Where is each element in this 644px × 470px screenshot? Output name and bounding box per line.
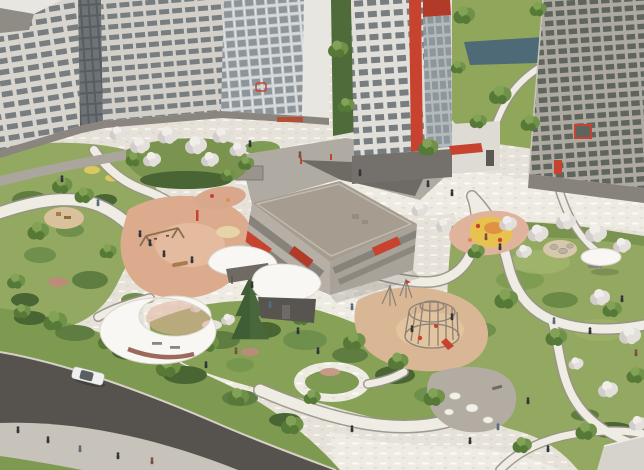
umbrella-canopy [581, 249, 621, 266]
roof-vent [352, 214, 359, 219]
person [151, 457, 154, 464]
grove-shrub-band [140, 171, 232, 189]
person [411, 325, 414, 332]
boulder [445, 409, 454, 415]
right-facade [529, 0, 644, 188]
stone [559, 248, 568, 254]
play-item [210, 194, 214, 198]
person [469, 437, 472, 444]
shrub [72, 271, 108, 289]
tree-gap [331, 0, 354, 136]
shrub [226, 358, 254, 372]
person [299, 151, 302, 158]
swing-seat [154, 238, 157, 240]
person [351, 303, 354, 310]
person [451, 313, 454, 320]
annex-door [486, 150, 494, 166]
person [249, 140, 252, 147]
person [547, 445, 550, 452]
roof-vent [362, 220, 368, 224]
person [235, 347, 238, 354]
right-apartment-building [528, 0, 644, 203]
pavilion-door [282, 305, 290, 319]
play-post [196, 210, 199, 221]
play-item [468, 238, 472, 242]
person [527, 397, 530, 404]
person [117, 452, 120, 459]
play-item [498, 238, 502, 242]
flower-bed [320, 368, 340, 376]
balcony-wing [221, 0, 304, 116]
boulder [466, 404, 478, 412]
facade-slab-b [101, 0, 224, 121]
bench [170, 346, 180, 349]
flower-bed [48, 277, 68, 287]
person [359, 169, 362, 176]
end-wall [302, 0, 331, 118]
person [635, 349, 638, 356]
person [451, 189, 454, 196]
person [191, 256, 194, 263]
stone [567, 244, 574, 248]
stair-glass-stripe [78, 0, 103, 126]
wood-structure [64, 216, 71, 219]
person [297, 327, 300, 334]
red-framed-window [575, 125, 591, 138]
person [427, 180, 430, 187]
person [485, 233, 488, 240]
person [149, 239, 152, 246]
person [499, 243, 502, 250]
person [97, 199, 100, 206]
courtyard-render-stage [0, 0, 644, 470]
bench [152, 342, 162, 345]
person [163, 250, 166, 257]
shrub [542, 292, 578, 308]
person [47, 436, 50, 443]
person [17, 426, 20, 433]
play-item [418, 336, 422, 340]
person [317, 347, 320, 354]
person [251, 281, 254, 288]
storefront-red [277, 117, 303, 122]
shrub [283, 330, 327, 350]
boulder [450, 393, 461, 400]
person [621, 295, 624, 302]
tower-red-stripe [409, 0, 423, 152]
person [553, 317, 556, 324]
flower-bed [241, 348, 259, 356]
boulder [483, 417, 493, 423]
person [351, 425, 354, 432]
person [139, 230, 142, 237]
person [205, 361, 208, 368]
play-item [226, 198, 230, 202]
person [589, 327, 592, 334]
person [269, 301, 272, 308]
shrub [24, 247, 56, 263]
play-item [434, 324, 438, 328]
person [497, 423, 500, 430]
red-entrance-door [554, 160, 562, 174]
flower-bed [84, 166, 100, 174]
tower-red-crown [423, 0, 451, 17]
sand-patch [216, 226, 240, 238]
courtyard-aerial-render [0, 0, 644, 470]
person [79, 445, 82, 452]
person [61, 175, 64, 182]
wood-structure [56, 212, 61, 216]
stone [550, 245, 558, 250]
play-item [476, 224, 480, 228]
tower-glass-column [423, 15, 452, 149]
umbrella-shadow [591, 269, 619, 276]
swing-seat [166, 235, 169, 237]
shrub [11, 293, 39, 307]
